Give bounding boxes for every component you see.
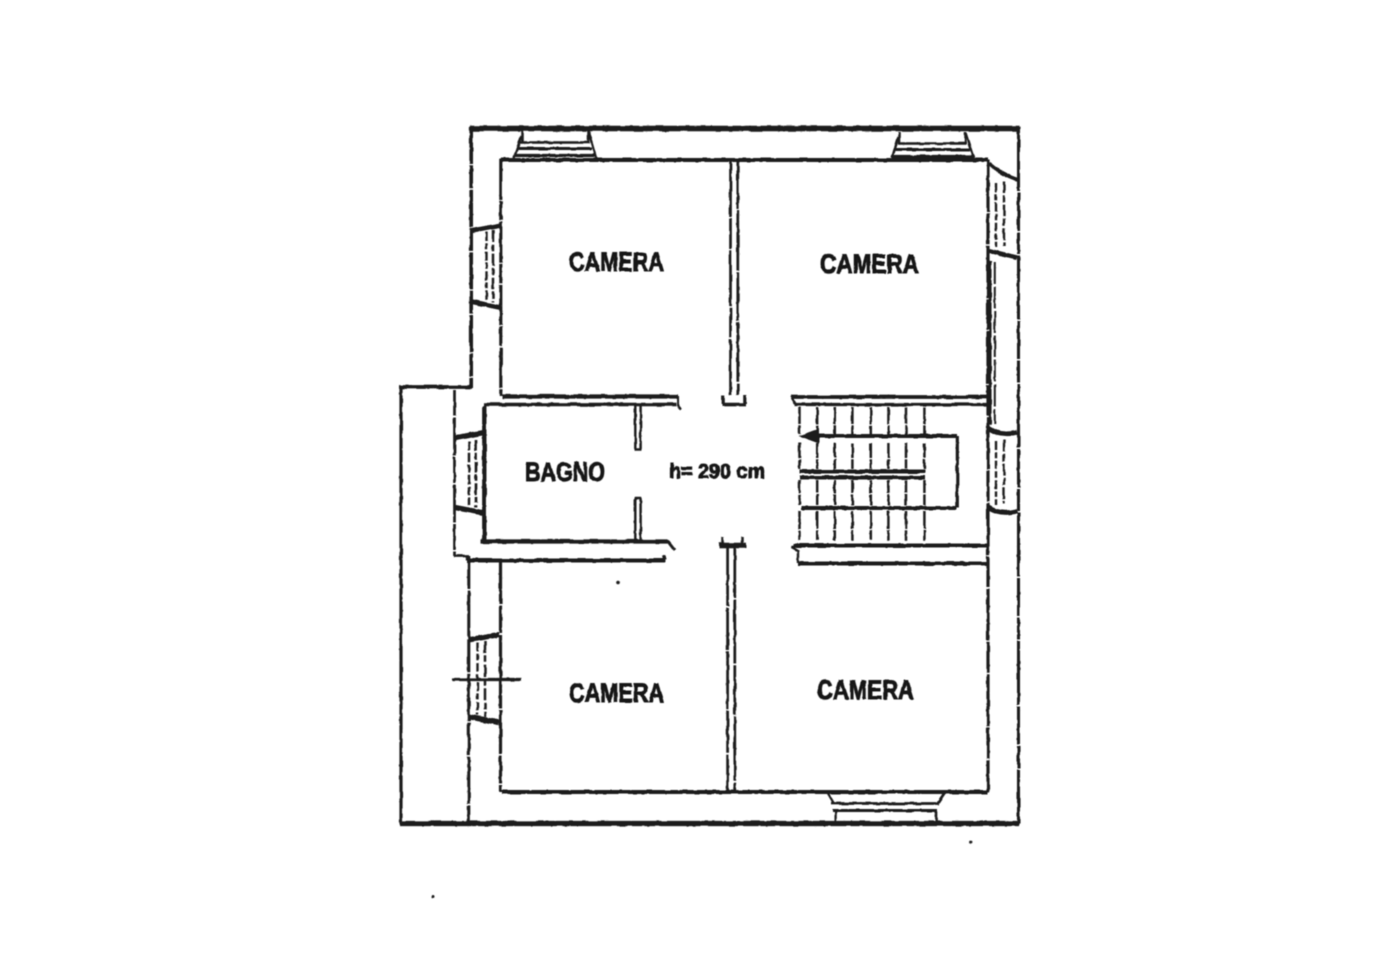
svg-text:CAMERA: CAMERA — [569, 678, 664, 708]
svg-text:CAMERA: CAMERA — [820, 249, 919, 279]
svg-text:CAMERA: CAMERA — [817, 675, 914, 705]
svg-text:h= 290 cm: h= 290 cm — [669, 460, 765, 483]
svg-text:BAGNO: BAGNO — [525, 457, 605, 487]
svg-text:CAMERA: CAMERA — [569, 247, 664, 277]
